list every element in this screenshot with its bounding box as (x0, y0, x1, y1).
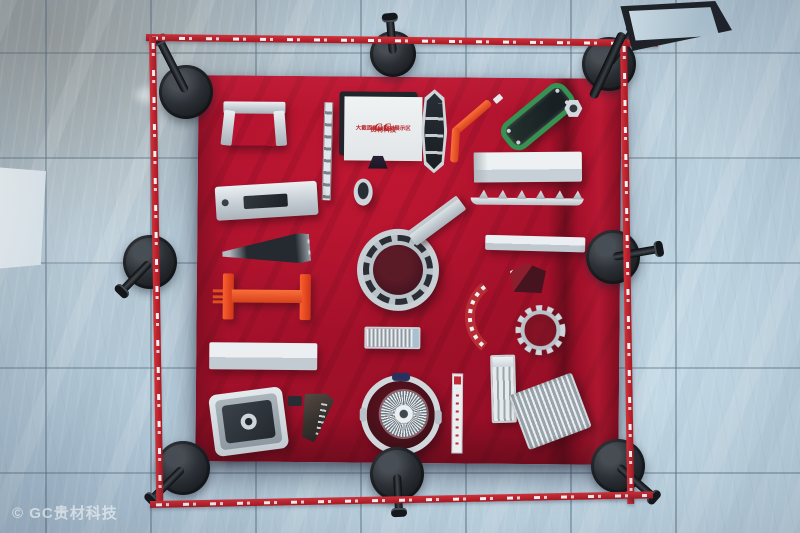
diagonal-flat-bar (406, 195, 466, 246)
red-ibeam-profile (223, 273, 311, 320)
channel-top-cap (492, 357, 513, 368)
heatsink-hub (395, 405, 413, 423)
ibeam-prong (213, 289, 223, 292)
bar-hole (221, 199, 228, 206)
display-table-red-cloth: GC 贵材铝材 贵材科技 大截面工业型材展示区 (195, 75, 621, 465)
large-ring-profile (357, 229, 440, 312)
rail-base (471, 198, 584, 206)
orange-elbow-profile (450, 127, 460, 162)
corner-screw (555, 88, 561, 94)
u-channel-leg (273, 110, 287, 146)
white-box-profile (474, 152, 582, 183)
stanchion-base (159, 65, 213, 119)
green-frame-profile (496, 78, 579, 155)
sign-face: GC 贵材铝材 贵材科技 大截面工业型材展示区 (344, 96, 423, 161)
box-end-cap (474, 152, 488, 182)
ring-hollow-center (373, 245, 423, 295)
round-tube-piece (354, 179, 373, 206)
angle-comb-fins (315, 403, 327, 438)
wing-prong (307, 239, 316, 244)
gear-ring-profile (514, 304, 566, 356)
sign-subtitle: 大截面工业型材展示区 (356, 125, 411, 132)
ring-clip (360, 408, 367, 422)
finned-plate-profile (509, 372, 592, 450)
wing-prong (308, 250, 317, 255)
boat-ribs (425, 103, 443, 159)
exhibit-sign-board: GC 贵材铝材 贵材科技 大截面工业型材展示区 (339, 91, 418, 156)
white-plank-profile (209, 342, 317, 370)
finned-heatsink-strip (364, 327, 420, 349)
dark-angle-profile (296, 390, 335, 445)
ring-clip (392, 373, 410, 381)
slotted-flat-bar (215, 181, 319, 221)
dashed-arc-profile (452, 281, 489, 351)
ibeam-web (232, 289, 302, 303)
elbow-end-cap (493, 94, 504, 104)
ibeam-prong (213, 295, 223, 298)
photo-watermark: © GC贵材科技 (12, 502, 118, 523)
u-channel-leg (220, 110, 235, 146)
notched-ring-profile (360, 375, 441, 456)
tapered-wing-profile (221, 232, 311, 269)
tag-text-marks (455, 388, 459, 448)
small-dark-block (288, 396, 302, 406)
pentagon-box-profile (510, 263, 546, 293)
tag-header (454, 376, 461, 384)
corner-screw (515, 140, 521, 146)
strip-end-cap (412, 329, 418, 347)
ibeam-prong (213, 300, 223, 303)
spec-tag-strip (451, 373, 463, 453)
corner-screw (506, 128, 512, 134)
flat-strip-profile (485, 235, 585, 253)
ladder-rail-profile (322, 102, 334, 200)
ring-clip (435, 410, 442, 424)
bar-slot (243, 193, 288, 209)
multi-channel-profile (490, 355, 517, 424)
boat-shaped-profile (421, 89, 448, 173)
serrated-rail-profile (471, 187, 584, 206)
radial-heatsink-disc (381, 391, 427, 437)
complex-extrusion-block (208, 386, 289, 457)
exhibition-photo: GC 贵材铝材 贵材科技 大截面工业型材展示区 (0, 0, 800, 533)
white-wall-panel (0, 167, 46, 269)
u-channel-profile (223, 101, 285, 146)
tile-highlight (675, 53, 780, 159)
